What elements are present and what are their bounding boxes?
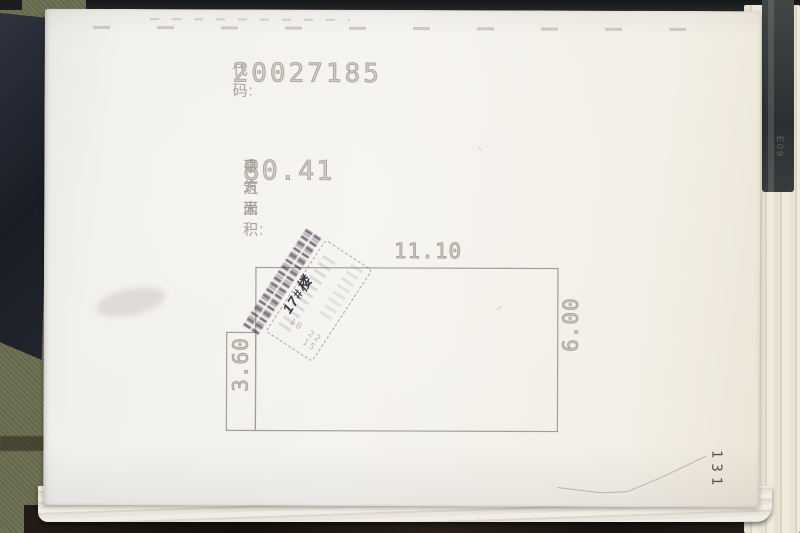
desk-corner-dark: [0, 0, 22, 10]
page-number: 131: [706, 448, 724, 492]
dark-spine-object: E09: [762, 0, 794, 192]
dimension-left-label: 3.60: [229, 329, 251, 399]
spine-label: E09: [771, 125, 785, 169]
paper-speck-1: [497, 306, 502, 309]
paper-speck-2: [478, 147, 481, 150]
document-sheet: 代码: 20027185 建筑面积: 80.41 平方米 11.10 6.00 …: [43, 9, 761, 507]
photo-of-document: E09 代码: 20027185 建筑面积: 80.41 平方米 11.10 6…: [0, 0, 800, 533]
dimension-top-label: 11.10: [378, 239, 478, 263]
paper-crease: [557, 456, 706, 494]
dimension-right-label: 6.00: [559, 295, 581, 355]
